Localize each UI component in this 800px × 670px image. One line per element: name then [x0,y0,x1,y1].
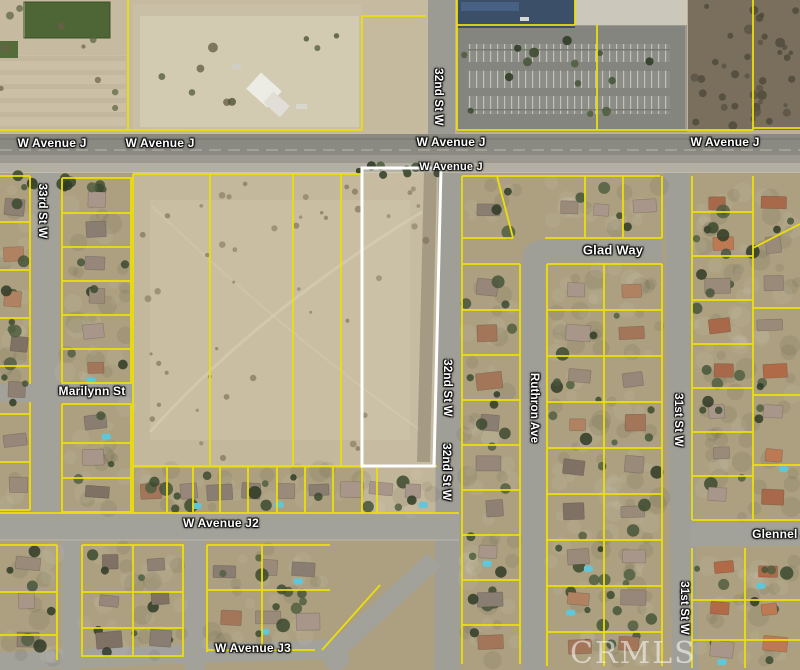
graded-pad [140,16,359,127]
map-graphics [0,0,800,670]
aerial-parcel-map[interactable]: W Avenue JW Avenue JW Avenue JW Avenue J… [0,0,800,670]
green-field [25,2,110,38]
scrub-lot [688,0,800,130]
subject-parcel[interactable] [362,168,441,466]
subject-parcel-outline [362,168,441,466]
